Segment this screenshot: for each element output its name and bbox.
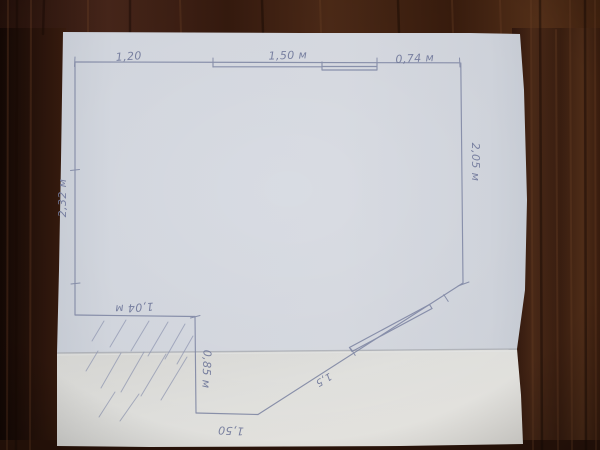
photo-of-floor-plan-sketch: 1,20 1,50 м 0,74 м 2,05 м 2,32 м 1,04 м …: [0, 0, 600, 450]
sketch-canvas: 1,20 1,50 м 0,74 м 2,05 м 2,32 м 1,04 м …: [0, 0, 600, 450]
photo-vignette: [0, 0, 600, 450]
